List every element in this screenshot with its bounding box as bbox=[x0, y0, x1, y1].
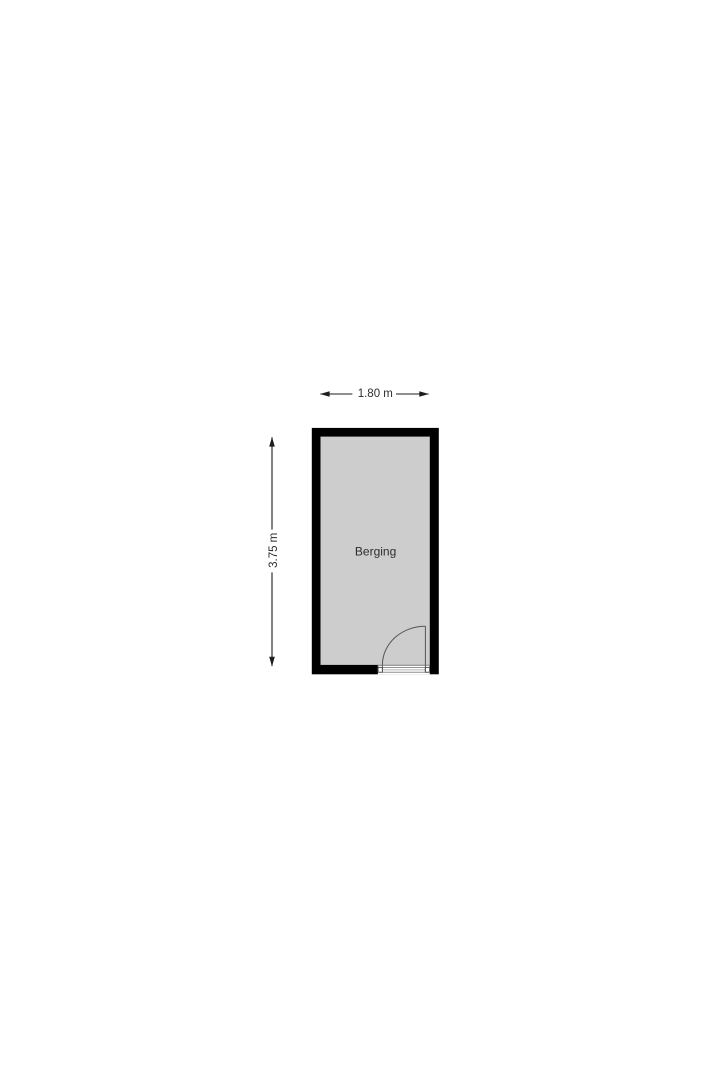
svg-text:1.80 m: 1.80 m bbox=[358, 388, 393, 400]
svg-text:Berging: Berging bbox=[355, 545, 396, 559]
svg-text:3.75 m: 3.75 m bbox=[268, 533, 280, 568]
